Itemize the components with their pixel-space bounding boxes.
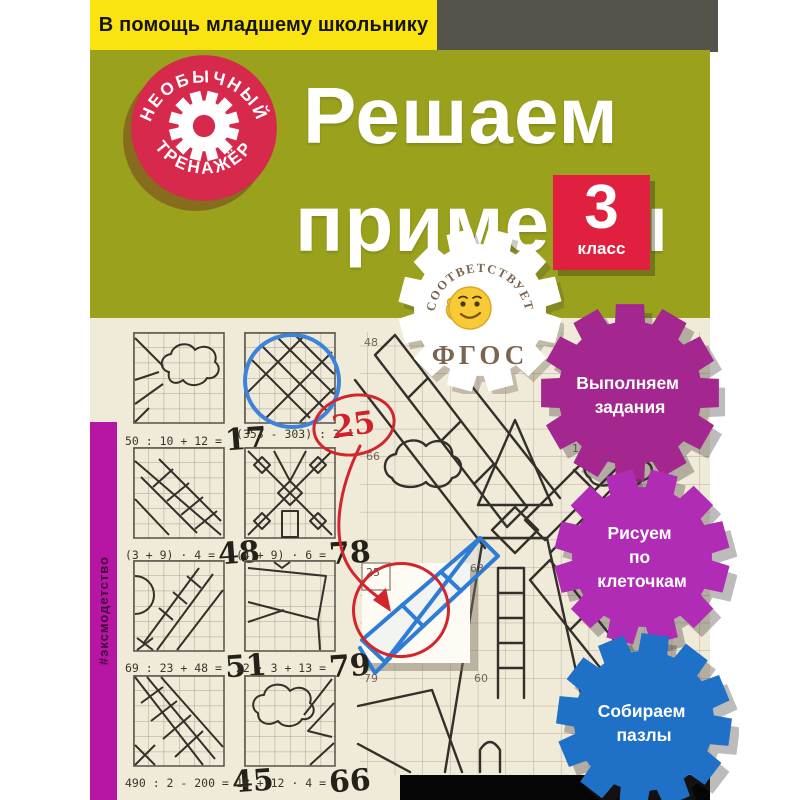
exercise-grid-art [244,447,336,539]
exercise-expression: 490 : 2 - 200 = [125,776,229,795]
title-line-1: Решаем [303,76,619,156]
feature-badge-line: по [629,547,650,567]
series-banner-label: В помощь младшему школьнику [99,14,429,37]
grid-cell-number: 63 [470,562,484,575]
feature-badge-tasks: Выполняем задания [535,298,725,488]
exercise-grid-art [133,447,225,539]
top-gray-band [437,0,718,52]
feature-badge-puzzles: Собираем пазлы [549,626,739,800]
exercise-grid-art [133,675,225,767]
exercise-answer: 66 [328,768,371,796]
book-cover: В помощь младшему школьнику [0,0,800,800]
feature-badge-line: Выполняем [576,373,679,393]
publisher-hashtag: #эксмодетство [96,556,111,665]
unusual-trainer-badge: НЕОБЫЧНЫЙ ТРЕНАЖЁР [118,42,290,214]
fgos-label: ФГОС [432,340,529,370]
exercise-caption: 18 + 12 · 4 = 66 [236,769,372,795]
grade-badge: 3 класс [553,175,650,270]
grade-label: класс [553,240,650,257]
red-arrow-annotation [325,438,435,623]
feature-badge-line: Собираем [598,701,686,721]
gear-icon: Рисуем по клеточкам [555,470,730,645]
feature-badge-drawing: Рисуем по клеточкам [547,462,737,652]
exercise-grid-art [133,332,225,424]
exercise-grid-art [244,675,336,767]
feature-badge-line: Рисуем [608,523,672,543]
grid-cell-number: 60 [474,672,488,685]
feature-badge-line: пазлы [616,725,671,745]
grid-cell-number: 48 [364,336,378,349]
feature-badge-line: задания [595,397,666,417]
grade-number: 3 [553,177,650,239]
gear-icon: Собираем пазлы [556,633,732,800]
spine-strip: #эксмодетство [90,422,117,800]
exercise-expression: 18 + 12 · 4 = [236,776,326,795]
feature-badge-line: клеточкам [597,571,687,591]
exercise-grid-art [244,560,336,652]
exercise-grid-art [133,560,225,652]
handwritten-answer: 25 [330,404,378,446]
